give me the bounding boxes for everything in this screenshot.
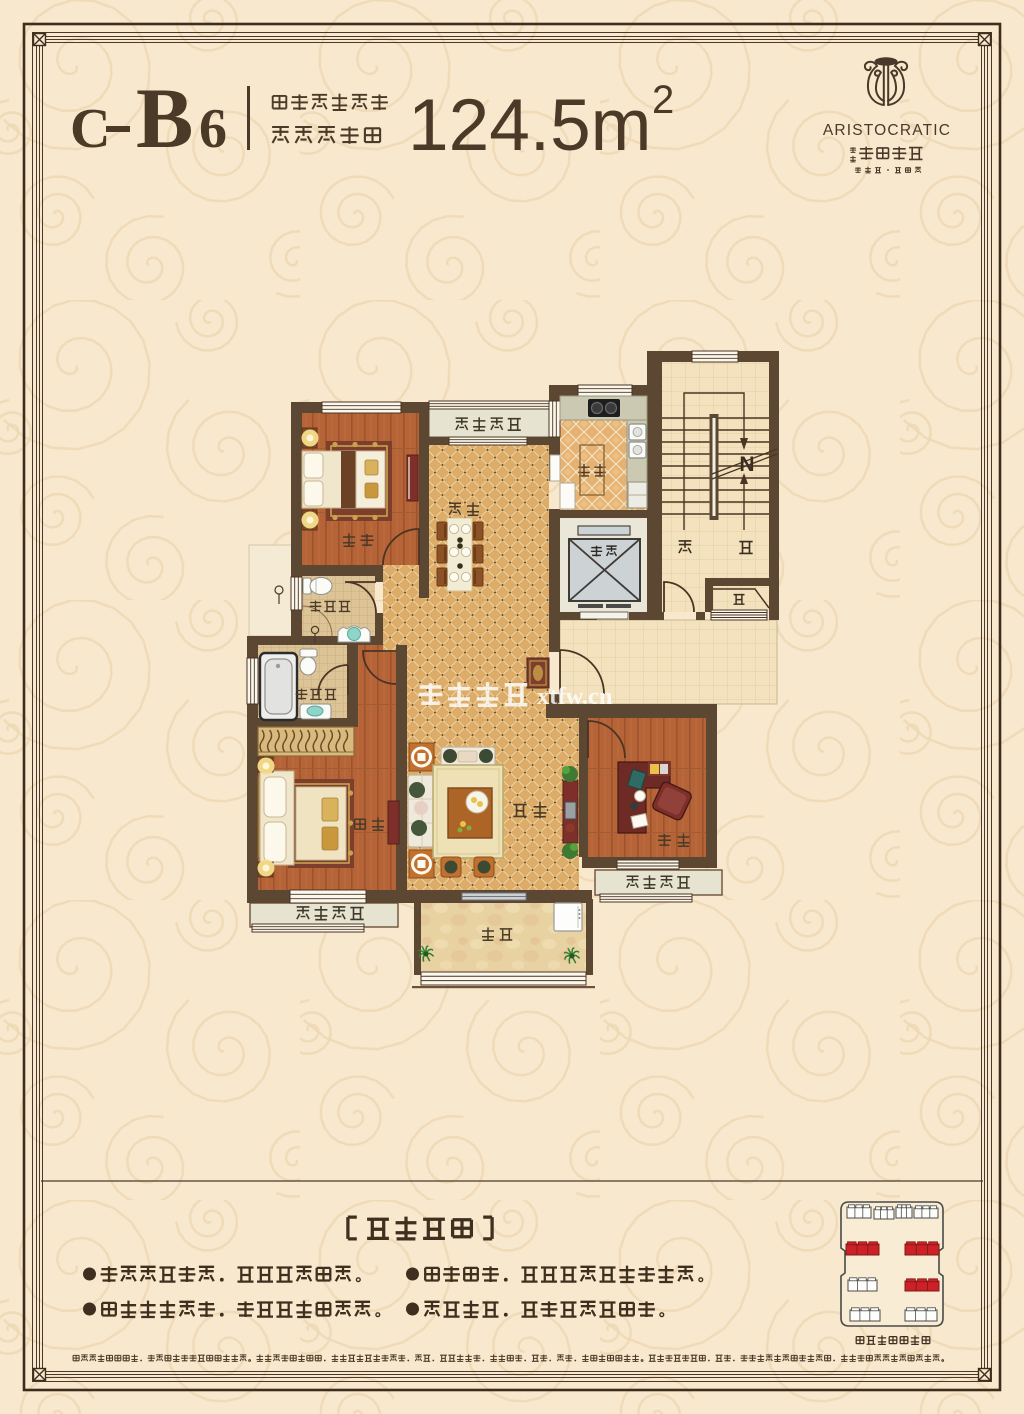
svg-text:B: B [136,70,193,166]
svg-text:6: 6 [199,98,227,160]
svg-text:N: N [739,453,754,476]
svg-text:xtfw.cn: xtfw.cn [537,683,613,710]
svg-text:124.5m: 124.5m [408,85,652,166]
svg-text:ARISTOCRATIC: ARISTOCRATIC [823,122,951,139]
svg-text:2: 2 [652,78,674,122]
svg-text:C: C [70,98,110,160]
